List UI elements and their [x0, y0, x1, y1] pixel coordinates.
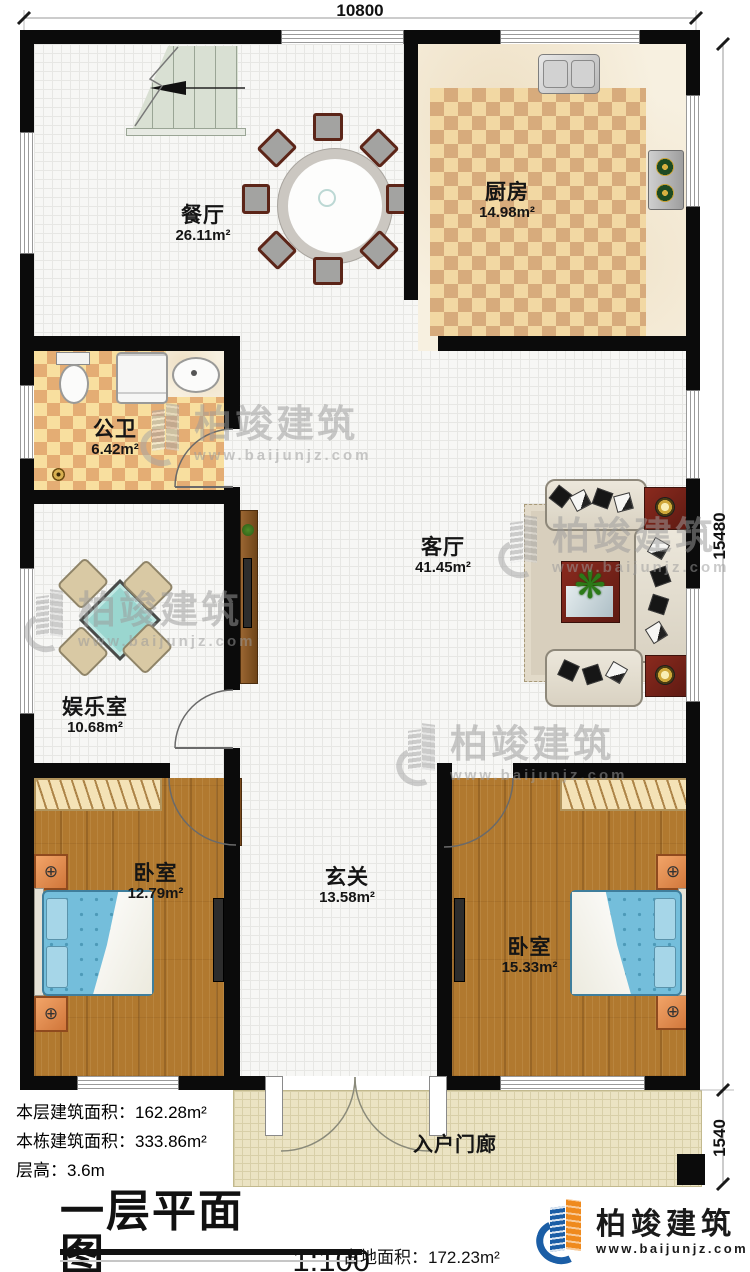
cabinet-tv — [243, 558, 252, 628]
window — [20, 385, 34, 459]
dim-top: 10800 — [320, 1, 400, 21]
floor-drain — [52, 468, 65, 481]
kitchen-sink-basin-left — [543, 60, 568, 88]
kitchen-sink-basin-right — [571, 60, 595, 88]
room-label-bedroom1: 卧室12.79m² — [98, 862, 213, 902]
coffee-table-plant: ❋ — [570, 566, 610, 606]
building-stats: 本层建筑面积：162.28m² 本栋建筑面积：333.86m² 层高：3.6m — [16, 1098, 207, 1185]
stat-line: 层高：3.6m — [16, 1156, 207, 1185]
room-label-living: 客厅41.45m² — [385, 536, 501, 576]
brand-logo: 柏竣建筑 www.baijunjz.com — [536, 1198, 748, 1266]
staircase-base — [126, 128, 246, 136]
window — [281, 30, 404, 44]
wall-column-right — [437, 763, 452, 1090]
title-underline — [60, 1249, 362, 1255]
window — [686, 390, 700, 479]
floor-plan-canvas: ❋ ⊕ ⊕ ⊕ ⊕ — [0, 0, 750, 1272]
dining-table-center — [318, 189, 336, 207]
window — [500, 1076, 645, 1090]
nightstand: ⊕ — [34, 996, 68, 1032]
washing-machine — [116, 352, 168, 404]
room-label-gameroom: 娱乐室10.68m² — [35, 696, 155, 736]
window — [20, 132, 34, 254]
table-lamp — [655, 665, 675, 685]
stat-line: 本栋建筑面积：333.86m² — [16, 1127, 207, 1156]
entry-door-jamb — [429, 1076, 447, 1136]
room-label-dining: 餐厅26.11m² — [143, 204, 263, 244]
bedroom-tv — [213, 898, 224, 982]
brand-logo-icon — [536, 1198, 588, 1266]
wall-bath-top — [20, 336, 240, 351]
brand-url: www.baijunjz.com — [596, 1241, 748, 1256]
wall-bottom — [20, 1076, 77, 1090]
wall-column-left — [224, 748, 240, 1090]
bed-pillow — [654, 898, 676, 940]
stat-line: 本层建筑面积：162.28m² — [16, 1098, 207, 1127]
room-label-kitchen: 厨房14.98m² — [452, 181, 562, 221]
room-label-bedroom2: 卧室15.33m² — [472, 936, 587, 976]
room-label-foyer: 玄关13.58m² — [287, 866, 407, 906]
wall-kitchen-left — [404, 30, 418, 300]
nightstand: ⊕ — [656, 994, 690, 1030]
bed-duvet — [89, 892, 152, 994]
footprint-area: 占地面积：172.23m² — [343, 1243, 500, 1268]
nightstand: ⊕ — [34, 854, 68, 890]
table-lamp — [655, 497, 675, 517]
bed-pillow — [654, 946, 676, 988]
title-underline-thin — [60, 1260, 362, 1262]
wall-column-left — [224, 336, 240, 429]
wall-bed1-top — [20, 763, 170, 778]
bathroom-sink-drain — [191, 370, 197, 376]
wall-column-left — [224, 487, 240, 690]
dining-chair — [313, 113, 343, 141]
dim-right-main: 15480 — [710, 496, 730, 576]
toilet-bowl — [59, 364, 89, 404]
room-label-bathroom: 公卫6.42m² — [55, 418, 175, 458]
entry-door-jamb — [265, 1076, 283, 1136]
wall-bath-bottom — [20, 490, 240, 504]
stove-burner — [656, 158, 674, 176]
window — [77, 1076, 179, 1090]
nightstand: ⊕ — [656, 854, 690, 890]
porch-pillar — [677, 1154, 705, 1185]
bedroom-tv — [454, 898, 465, 982]
wall-bed2-top — [513, 763, 700, 778]
cabinet-plant — [242, 524, 254, 536]
stove-burner — [656, 184, 674, 202]
dim-right-porch: 1540 — [710, 1102, 730, 1174]
window — [686, 588, 700, 702]
wall-kitchen-bottom — [438, 336, 700, 351]
wardrobe — [560, 778, 690, 811]
bed-pillow — [46, 946, 68, 988]
window — [500, 30, 640, 44]
window — [686, 95, 700, 207]
brand-name: 柏竣建筑 — [596, 1208, 748, 1241]
wall-bottom — [643, 1076, 700, 1090]
room-label-porch: 入户门廊 — [385, 1134, 525, 1156]
window — [20, 568, 34, 714]
wardrobe — [34, 778, 162, 811]
bed-pillow — [46, 898, 68, 940]
dining-chair — [313, 257, 343, 285]
